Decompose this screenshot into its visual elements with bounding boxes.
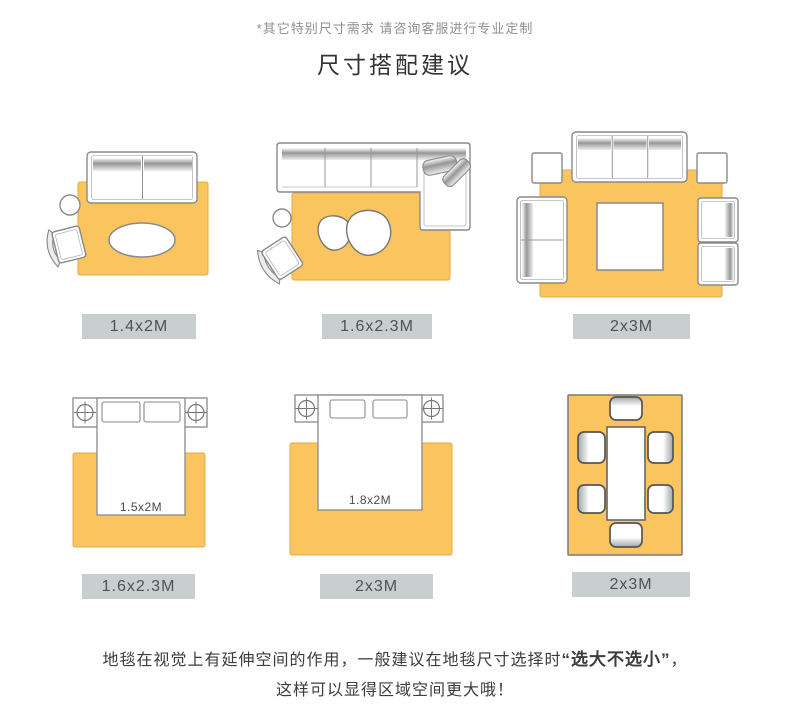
- chair-icon: [578, 485, 605, 513]
- chair-icon: [648, 485, 673, 513]
- square-coffee-table-icon: [597, 203, 663, 270]
- bed-size-text: 1.5x2M: [120, 500, 162, 514]
- bed-icon: 1.8x2M: [318, 395, 422, 510]
- bedroom-small-diagram: 1.5x2M: [60, 390, 220, 555]
- bed-icon: 1.5x2M: [97, 398, 185, 515]
- armchair-icon: [698, 198, 738, 242]
- pillow-icon: [330, 400, 365, 418]
- pillow-icon: [144, 402, 180, 422]
- chair-icon: [578, 432, 605, 463]
- dining-room-diagram: [560, 388, 700, 563]
- living-room-small-diagram: [40, 125, 215, 280]
- pillow-icon: [102, 402, 140, 422]
- rug-size-guide-page: *其它特别尺寸需求 请咨询客服进行专业定制 尺寸搭配建议: [0, 0, 790, 713]
- size-label: 2x3M: [320, 574, 433, 599]
- pebble-coffee-table-icon: [318, 216, 351, 250]
- oval-coffee-table-icon: [109, 223, 175, 257]
- chair-icon: [610, 523, 642, 547]
- living-room-sectional-diagram: [250, 128, 480, 293]
- sofa-icon: [572, 132, 687, 182]
- size-label: 1.4x2M: [82, 314, 196, 339]
- chair-icon: [610, 397, 642, 420]
- bedroom-large-diagram: 1.8x2M: [280, 390, 460, 560]
- page-title: 尺寸搭配建议: [0, 46, 790, 80]
- side-table-icon: [60, 195, 80, 215]
- size-label: 1.6x2.3M: [322, 314, 432, 339]
- loveseat-icon: [517, 197, 567, 283]
- size-label: 2x3M: [573, 314, 690, 339]
- dining-table-icon: [607, 427, 645, 520]
- chair-icon: [648, 432, 673, 463]
- footer-bold-text: “选大不选小”: [562, 650, 671, 669]
- custom-size-note: *其它特别尺寸需求 请咨询客服进行专业定制: [0, 18, 790, 37]
- size-label: 2x3M: [572, 572, 690, 597]
- footer-line2: 这样可以显得区域空间更大哦！: [0, 676, 790, 706]
- side-table-icon: [273, 209, 291, 227]
- footer-line1: 地毯在视觉上有延伸空间的作用，一般建议在地毯尺寸选择时“选大不选小”，: [0, 645, 790, 676]
- sofa-icon: [87, 152, 197, 203]
- bed-size-text: 1.8x2M: [349, 493, 391, 507]
- side-table-icon: [532, 153, 562, 183]
- footer-text-suffix: ，: [671, 652, 688, 669]
- footer-tip: 地毯在视觉上有延伸空间的作用，一般建议在地毯尺寸选择时“选大不选小”， 这样可以…: [0, 645, 790, 706]
- pillow-icon: [373, 400, 407, 418]
- pebble-coffee-table-icon: [347, 210, 391, 255]
- armchair-icon: [698, 243, 738, 285]
- living-room-large-diagram: [510, 125, 750, 305]
- size-label: 1.6x2.3M: [82, 574, 195, 599]
- footer-text: 地毯在视觉上有延伸空间的作用，一般建议在地毯尺寸选择时: [102, 652, 561, 669]
- side-table-icon: [697, 153, 727, 183]
